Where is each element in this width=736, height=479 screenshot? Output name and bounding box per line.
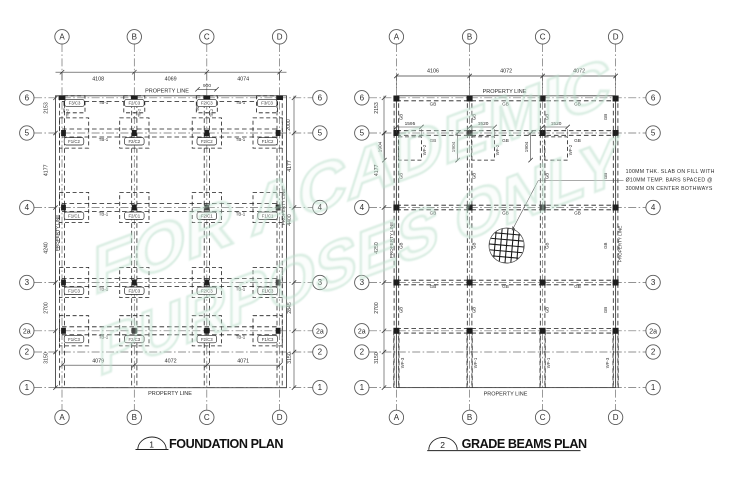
svg-text:D: D bbox=[613, 32, 619, 41]
svg-text:2a: 2a bbox=[316, 328, 324, 335]
svg-text:2153: 2153 bbox=[374, 102, 380, 114]
svg-text:WF-3: WF-3 bbox=[400, 357, 405, 368]
svg-text:WF-1: WF-1 bbox=[473, 357, 478, 368]
svg-text:A: A bbox=[394, 413, 400, 422]
svg-text:B: B bbox=[132, 413, 137, 422]
svg-text:B: B bbox=[467, 413, 472, 422]
svg-text:GB: GB bbox=[430, 101, 437, 106]
svg-text:4074: 4074 bbox=[237, 77, 249, 83]
svg-text:5: 5 bbox=[318, 129, 323, 138]
svg-text:F2/C2: F2/C2 bbox=[128, 139, 140, 144]
svg-text:C: C bbox=[540, 32, 546, 41]
svg-text:100MM THK. SLAB ON FILL WITH: 100MM THK. SLAB ON FILL WITH bbox=[626, 169, 715, 175]
svg-text:D: D bbox=[277, 32, 283, 41]
svg-text:F2/C3: F2/C3 bbox=[201, 101, 213, 106]
svg-text:C: C bbox=[540, 413, 546, 422]
svg-text:4: 4 bbox=[25, 203, 30, 212]
svg-text:4072: 4072 bbox=[500, 69, 512, 75]
svg-text:2: 2 bbox=[318, 348, 323, 357]
svg-text:GB: GB bbox=[574, 284, 581, 289]
svg-text:3150: 3150 bbox=[287, 352, 293, 364]
svg-text:F1/C2: F1/C2 bbox=[68, 139, 80, 144]
svg-text:4069: 4069 bbox=[165, 77, 177, 83]
svg-text:GB: GB bbox=[603, 307, 608, 313]
svg-text:F1/C3: F1/C3 bbox=[262, 337, 274, 342]
svg-text:6: 6 bbox=[651, 93, 656, 102]
svg-text:2: 2 bbox=[25, 348, 30, 357]
svg-text:F2/C2: F2/C2 bbox=[201, 139, 213, 144]
svg-text:6: 6 bbox=[318, 93, 323, 102]
svg-text:TB-1: TB-1 bbox=[236, 100, 246, 105]
svg-text:3: 3 bbox=[651, 278, 656, 287]
svg-text:A: A bbox=[59, 32, 65, 41]
svg-text:F3/C3: F3/C3 bbox=[261, 101, 273, 106]
svg-text:B: B bbox=[132, 32, 137, 41]
svg-text:4108: 4108 bbox=[92, 77, 104, 83]
svg-text:2153: 2153 bbox=[44, 102, 50, 114]
svg-text:5: 5 bbox=[25, 129, 30, 138]
svg-text:2a: 2a bbox=[23, 328, 31, 335]
svg-text:3: 3 bbox=[25, 278, 30, 287]
svg-text:PROPERTY LINE: PROPERTY LINE bbox=[145, 89, 189, 95]
svg-text:GB: GB bbox=[398, 307, 403, 313]
svg-text:2700: 2700 bbox=[44, 302, 50, 314]
svg-text:F2/C3: F2/C3 bbox=[128, 101, 140, 106]
svg-text:TB-1: TB-1 bbox=[99, 211, 109, 216]
svg-text:D: D bbox=[613, 413, 619, 422]
svg-text:2: 2 bbox=[651, 348, 656, 357]
svg-text:2700: 2700 bbox=[374, 302, 380, 314]
svg-text:WF-1: WF-1 bbox=[546, 357, 551, 368]
svg-text:4106: 4106 bbox=[427, 69, 439, 75]
svg-text:300MM ON CENTER BOTHWAYS: 300MM ON CENTER BOTHWAYS bbox=[626, 186, 713, 192]
svg-text:GB: GB bbox=[603, 242, 608, 248]
svg-text:4071: 4071 bbox=[237, 359, 249, 365]
svg-text:2a: 2a bbox=[358, 328, 366, 335]
svg-text:A: A bbox=[59, 413, 65, 422]
svg-text:C: C bbox=[204, 32, 210, 41]
svg-text:F1/C3: F1/C3 bbox=[68, 289, 80, 294]
svg-text:F1/C2: F1/C2 bbox=[262, 139, 274, 144]
svg-text:FOUNDATION PLAN: FOUNDATION PLAN bbox=[169, 437, 283, 451]
svg-text:C: C bbox=[204, 413, 210, 422]
svg-text:F1/C3: F1/C3 bbox=[68, 337, 80, 342]
svg-text:F1/C1: F1/C1 bbox=[68, 214, 80, 219]
svg-text:GB: GB bbox=[545, 307, 550, 313]
svg-text:PROPERTY LINE: PROPERTY LINE bbox=[484, 392, 528, 398]
svg-text:1: 1 bbox=[360, 383, 365, 392]
svg-text:5: 5 bbox=[651, 129, 656, 138]
svg-text:D: D bbox=[277, 413, 283, 422]
svg-text:TB-1: TB-1 bbox=[236, 137, 246, 142]
svg-text:1: 1 bbox=[318, 383, 323, 392]
svg-text:GB: GB bbox=[545, 242, 550, 248]
svg-text:4177: 4177 bbox=[44, 164, 50, 176]
svg-text:TB-1: TB-1 bbox=[99, 100, 109, 105]
svg-text:6: 6 bbox=[360, 93, 365, 102]
svg-text:GB: GB bbox=[430, 284, 437, 289]
svg-text:6: 6 bbox=[25, 93, 30, 102]
svg-text:TB-1: TB-1 bbox=[99, 137, 109, 142]
svg-text:1: 1 bbox=[25, 383, 30, 392]
svg-text:GB: GB bbox=[502, 284, 509, 289]
svg-text:900: 900 bbox=[203, 83, 211, 89]
svg-text:4240: 4240 bbox=[44, 242, 50, 254]
svg-text:GRADE BEAMS PLAN: GRADE BEAMS PLAN bbox=[462, 437, 587, 451]
svg-text:3150: 3150 bbox=[44, 352, 50, 364]
svg-text:2: 2 bbox=[360, 348, 365, 357]
svg-text:WF-3: WF-3 bbox=[605, 357, 610, 368]
svg-text:3150: 3150 bbox=[374, 352, 380, 364]
svg-text:2000: 2000 bbox=[286, 119, 292, 131]
svg-text:GB: GB bbox=[472, 307, 477, 313]
svg-text:1: 1 bbox=[651, 383, 656, 392]
svg-text:Ø10MM TEMP. BARS SPACED @: Ø10MM TEMP. BARS SPACED @ bbox=[626, 177, 713, 183]
svg-text:1: 1 bbox=[149, 440, 154, 450]
svg-text:F3/C3: F3/C3 bbox=[69, 101, 81, 106]
svg-text:PROPERTY LINE: PROPERTY LINE bbox=[148, 391, 192, 397]
svg-text:2a: 2a bbox=[649, 328, 657, 335]
svg-text:B: B bbox=[467, 32, 472, 41]
svg-text:2: 2 bbox=[440, 440, 445, 450]
svg-text:A: A bbox=[394, 32, 400, 41]
svg-text:4: 4 bbox=[651, 203, 656, 212]
